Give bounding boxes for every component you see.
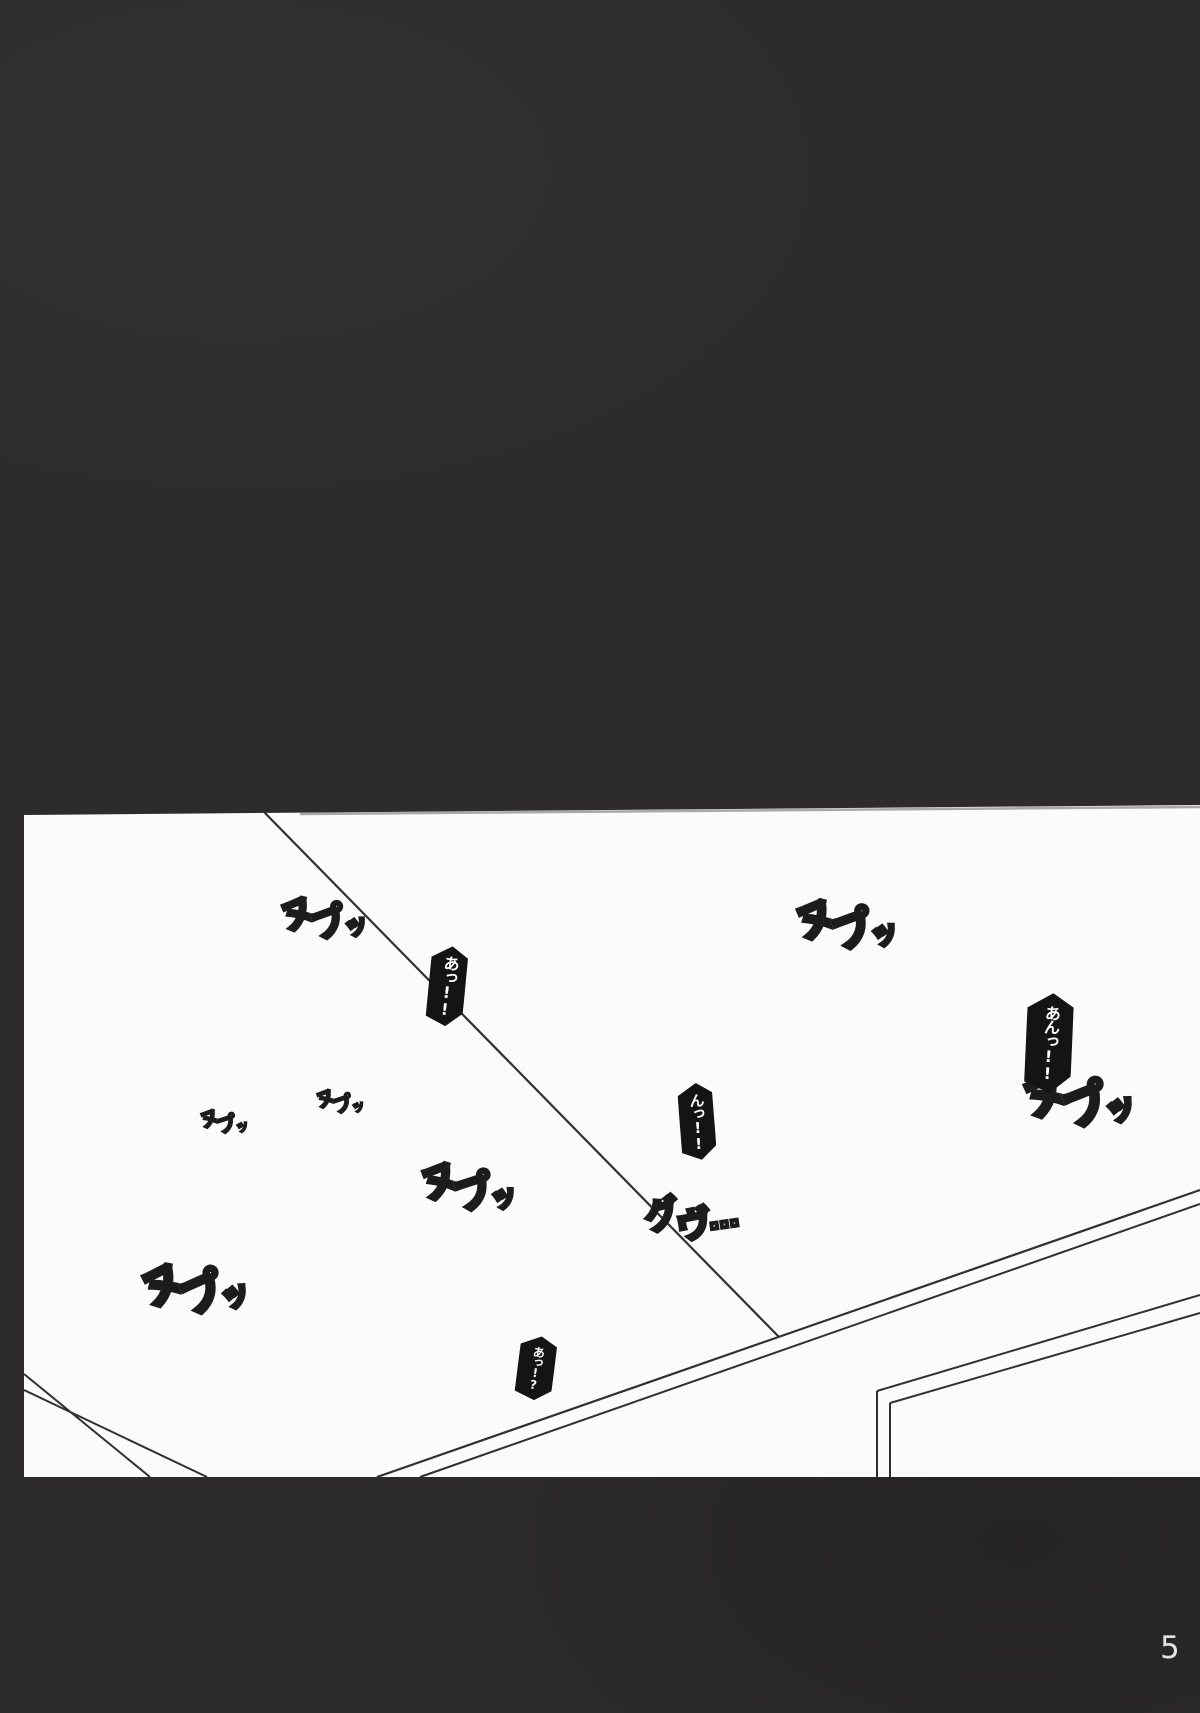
speech-bubble-text: あっ!! <box>435 954 458 1017</box>
manga-page: ヌプッ ヌプッ ヌプッ ヌプッ ヌプッ ヌプッ グヴ… ヌプッ あっ!! あんっ… <box>0 0 1200 1713</box>
speech-bubble-text: あっ!? <box>527 1345 546 1390</box>
manga-panel <box>0 0 1200 1713</box>
sfx-char: ッ <box>234 1120 250 1136</box>
page-number: 5 <box>1160 1630 1180 1666</box>
sfx-guvu: グヴ… <box>643 1189 737 1236</box>
sfx-char: ッ <box>350 1100 366 1116</box>
speech-bubble-text: んっ!! <box>688 1092 706 1151</box>
speech-bubble-text: あんっ!! <box>1038 1005 1059 1082</box>
speech-bubble-gasp-n: んっ!! <box>677 1082 717 1161</box>
sfx-char: … <box>706 1202 739 1236</box>
